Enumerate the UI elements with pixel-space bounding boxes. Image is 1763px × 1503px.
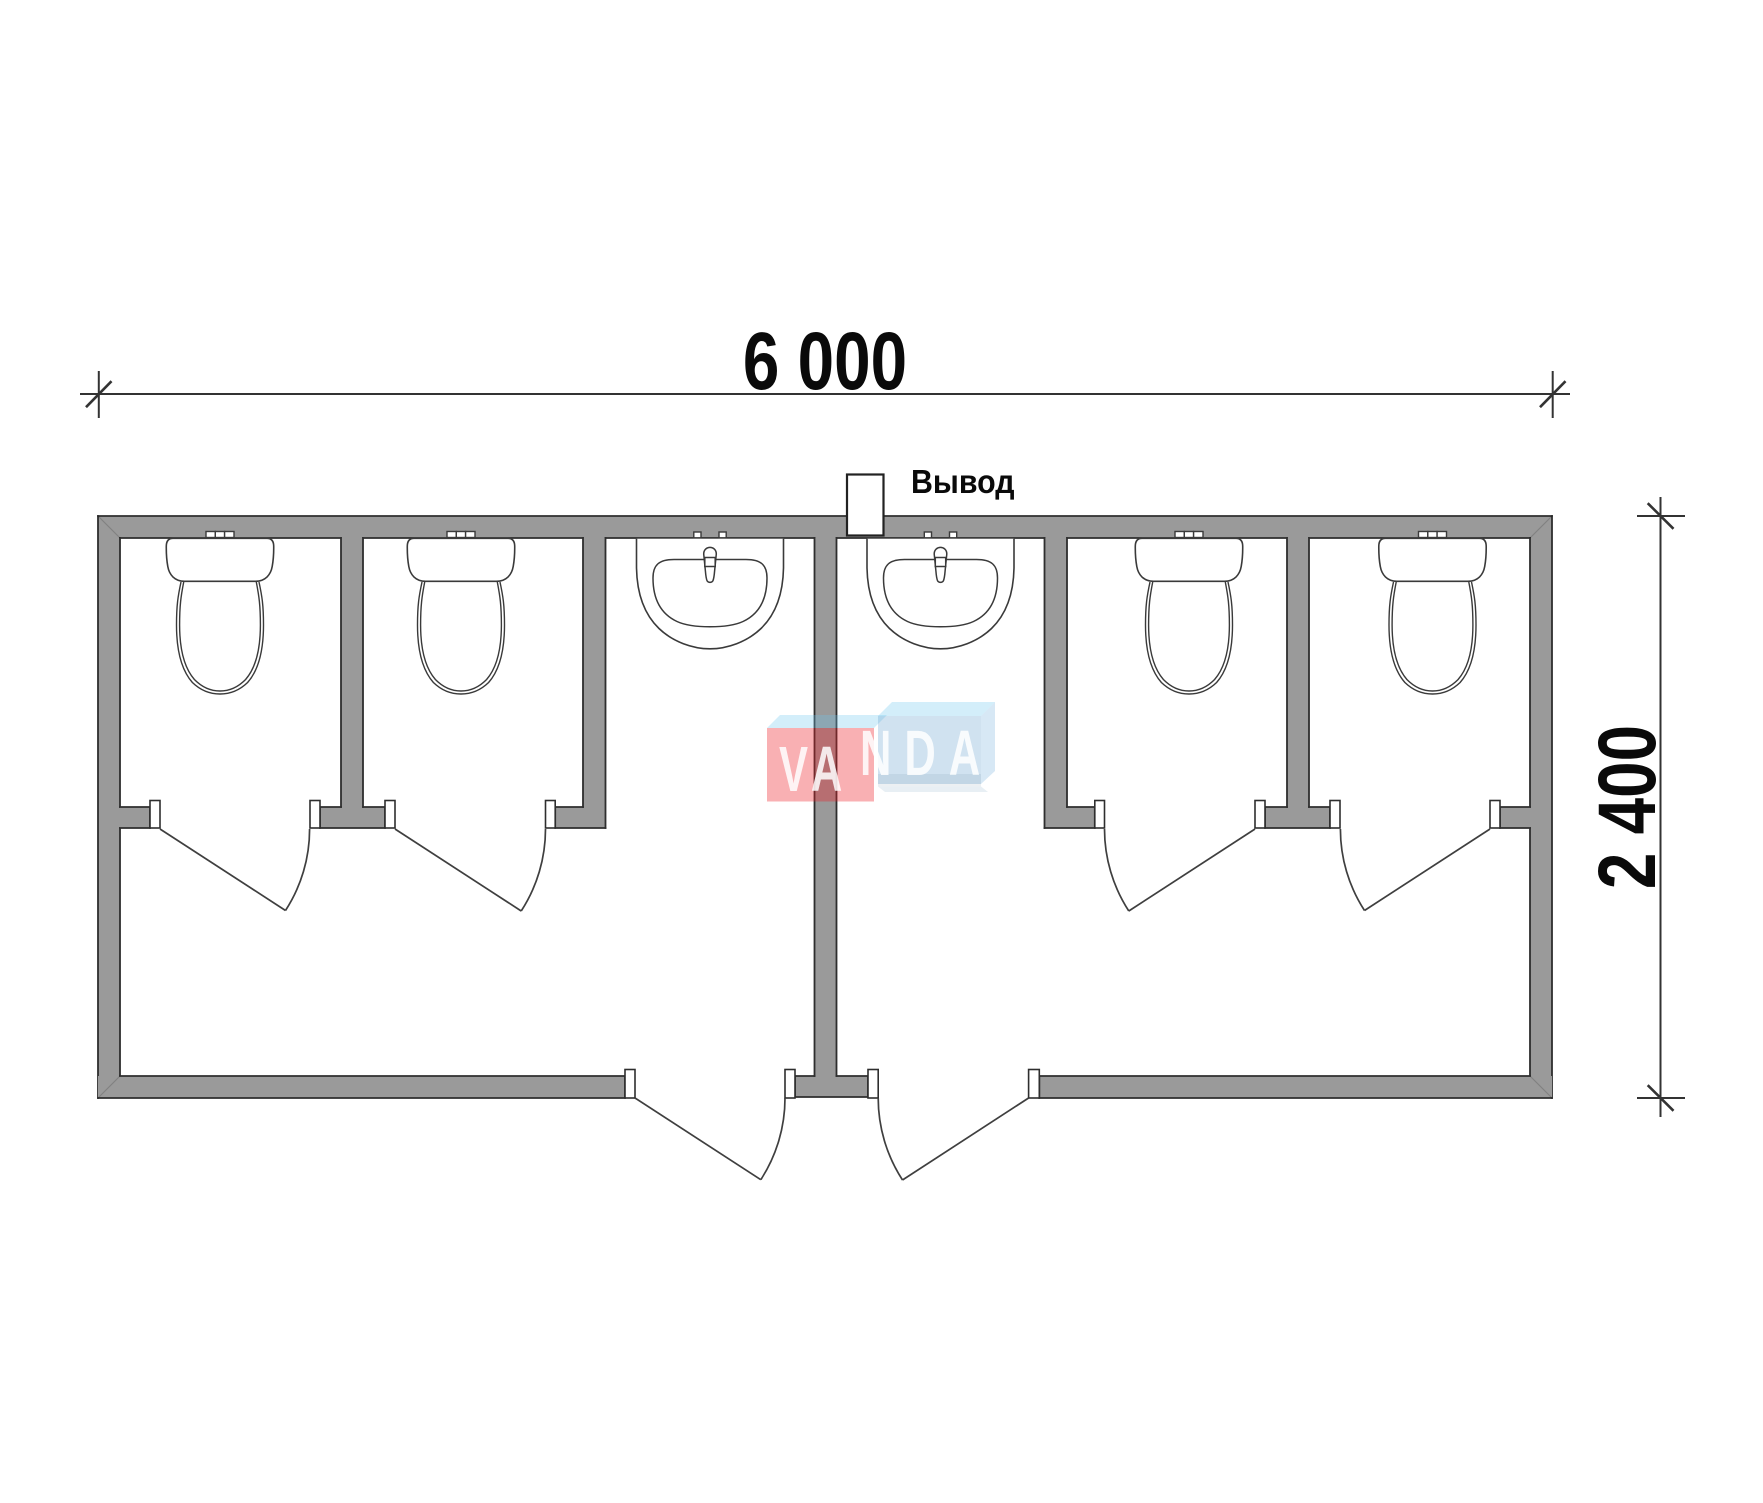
svg-text:NDA: NDA <box>860 717 993 790</box>
svg-text:Вывод: Вывод <box>911 463 1014 500</box>
svg-text:2 400: 2 400 <box>1581 725 1673 889</box>
svg-text:6 000: 6 000 <box>743 315 907 407</box>
svg-text:VA: VA <box>779 733 848 806</box>
